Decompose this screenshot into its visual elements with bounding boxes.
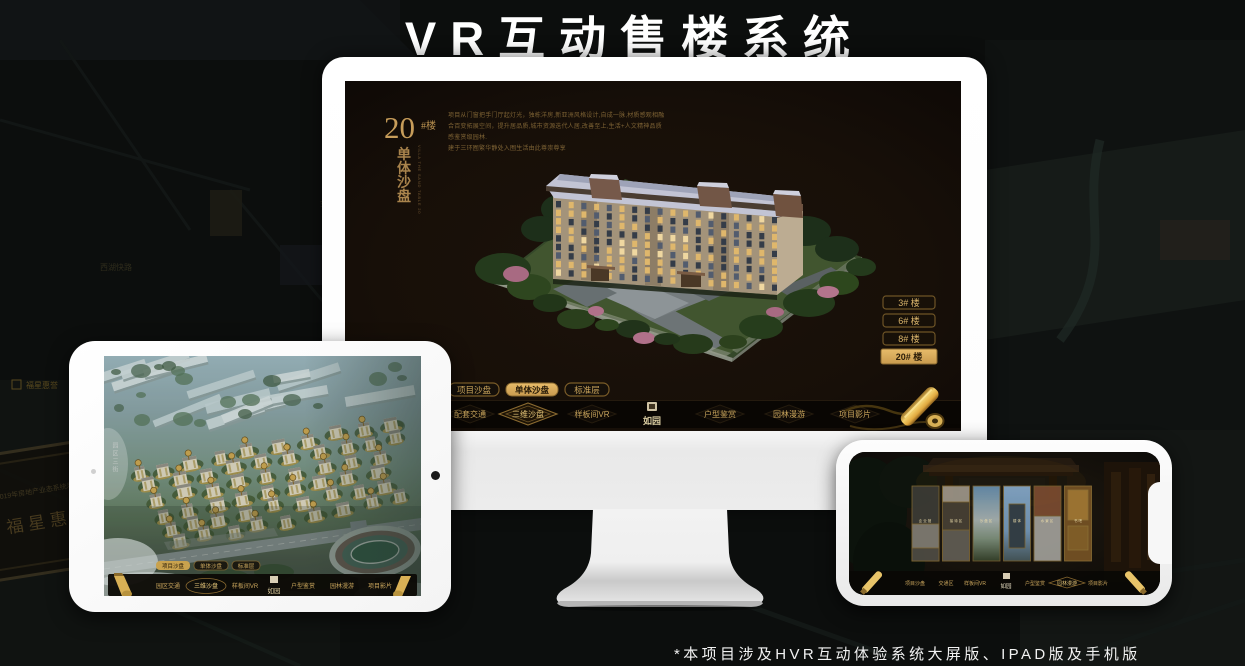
- svg-text:项目影片: 项目影片: [1088, 580, 1108, 587]
- svg-text:盘: 盘: [397, 188, 411, 204]
- svg-text:配套交通: 配套交通: [454, 409, 486, 419]
- svg-text:园林漫游: 园林漫游: [330, 582, 354, 590]
- svg-text:感鉴赏级园林.: 感鉴赏级园林.: [448, 133, 487, 141]
- svg-text:3# 楼: 3# 楼: [898, 297, 920, 308]
- svg-text:样板间VR: 样板间VR: [964, 580, 986, 587]
- svg-text:水 景 区: 水 景 区: [1041, 518, 1054, 523]
- svg-text:楼 体: 楼 体: [1013, 518, 1021, 523]
- svg-text:合百变拓展空间，提升居品质,城市资源迭代人居,改善至上,生活: 合百变拓展空间，提升居品质,城市资源迭代人居,改善至上,生活+人文精神品质: [448, 122, 662, 130]
- svg-text:8# 楼: 8# 楼: [898, 333, 920, 344]
- svg-text:沙 盘 区: 沙 盘 区: [980, 518, 993, 523]
- svg-text:福星惠誉: 福星惠誉: [26, 380, 58, 390]
- svg-text:建于三环囿繁华静处入囿生活由此尊崇尊享: 建于三环囿繁华静处入囿生活由此尊崇尊享: [448, 144, 566, 152]
- svg-text:接 待 区: 接 待 区: [950, 518, 963, 523]
- svg-text:项目沙盘: 项目沙盘: [162, 562, 185, 570]
- svg-text:项目影片: 项目影片: [839, 409, 871, 419]
- svg-text:单体沙盘: 单体沙盘: [515, 385, 550, 395]
- svg-text:标准层: 标准层: [238, 562, 255, 570]
- svg-text:VILLA THE SAND TABLE 20: VILLA THE SAND TABLE 20: [417, 145, 422, 214]
- svg-text:书 吧: 书 吧: [1074, 518, 1082, 523]
- svg-text:交通区: 交通区: [938, 580, 953, 587]
- svg-text:项目从门窗把手门厅起灯光，独栋洋房,新亚洲风格设计,自成一脉: 项目从门窗把手门厅起灯光，独栋洋房,新亚洲风格设计,自成一脉,材质感观相融: [448, 111, 664, 119]
- svg-text:三维沙盘: 三维沙盘: [512, 409, 544, 419]
- svg-text:6# 楼: 6# 楼: [898, 315, 920, 326]
- svg-text:户型鉴赏: 户型鉴赏: [1025, 580, 1045, 587]
- svg-text:样板间VR: 样板间VR: [574, 409, 609, 419]
- svg-text:标准层: 标准层: [574, 385, 600, 395]
- svg-text:如园: 如园: [1000, 582, 1012, 590]
- svg-text:如园: 如园: [643, 415, 661, 426]
- svg-text:项目沙盘: 项目沙盘: [905, 580, 925, 587]
- svg-text:园区交通: 园区交通: [156, 582, 180, 590]
- svg-text:20# 楼: 20# 楼: [896, 351, 923, 362]
- svg-text:项目影片: 项目影片: [368, 582, 392, 590]
- svg-text:20: 20: [384, 110, 415, 145]
- svg-text:户型鉴赏: 户型鉴赏: [291, 582, 315, 590]
- svg-text:三维沙盘: 三维沙盘: [194, 582, 218, 590]
- svg-text:#楼: #楼: [421, 119, 436, 132]
- svg-text:西湖快路: 西湖快路: [100, 262, 132, 272]
- svg-text:企 业 馆: 企 业 馆: [919, 518, 932, 523]
- svg-text:单体沙盘: 单体沙盘: [200, 562, 223, 570]
- svg-text:如园: 如园: [268, 586, 281, 595]
- svg-text:户型鉴赏: 户型鉴赏: [704, 409, 736, 419]
- svg-text:样板间VR: 样板间VR: [232, 582, 259, 590]
- svg-text:园林漫游: 园林漫游: [773, 409, 805, 419]
- svg-text:项目沙盘: 项目沙盘: [457, 385, 492, 395]
